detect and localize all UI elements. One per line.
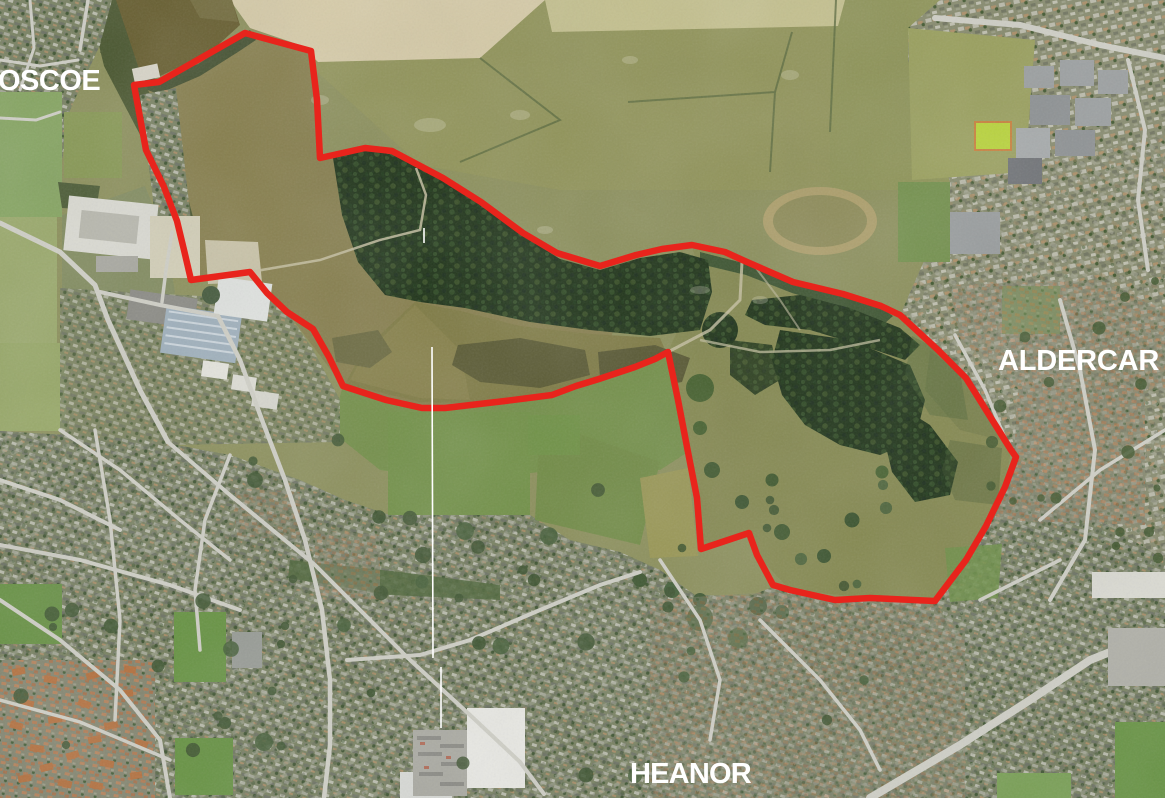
svg-text:HEANOR: HEANOR bbox=[630, 758, 752, 790]
svg-text:OSCOE: OSCOE bbox=[0, 65, 100, 97]
svg-text:ALDERCAR: ALDERCAR bbox=[998, 345, 1159, 377]
